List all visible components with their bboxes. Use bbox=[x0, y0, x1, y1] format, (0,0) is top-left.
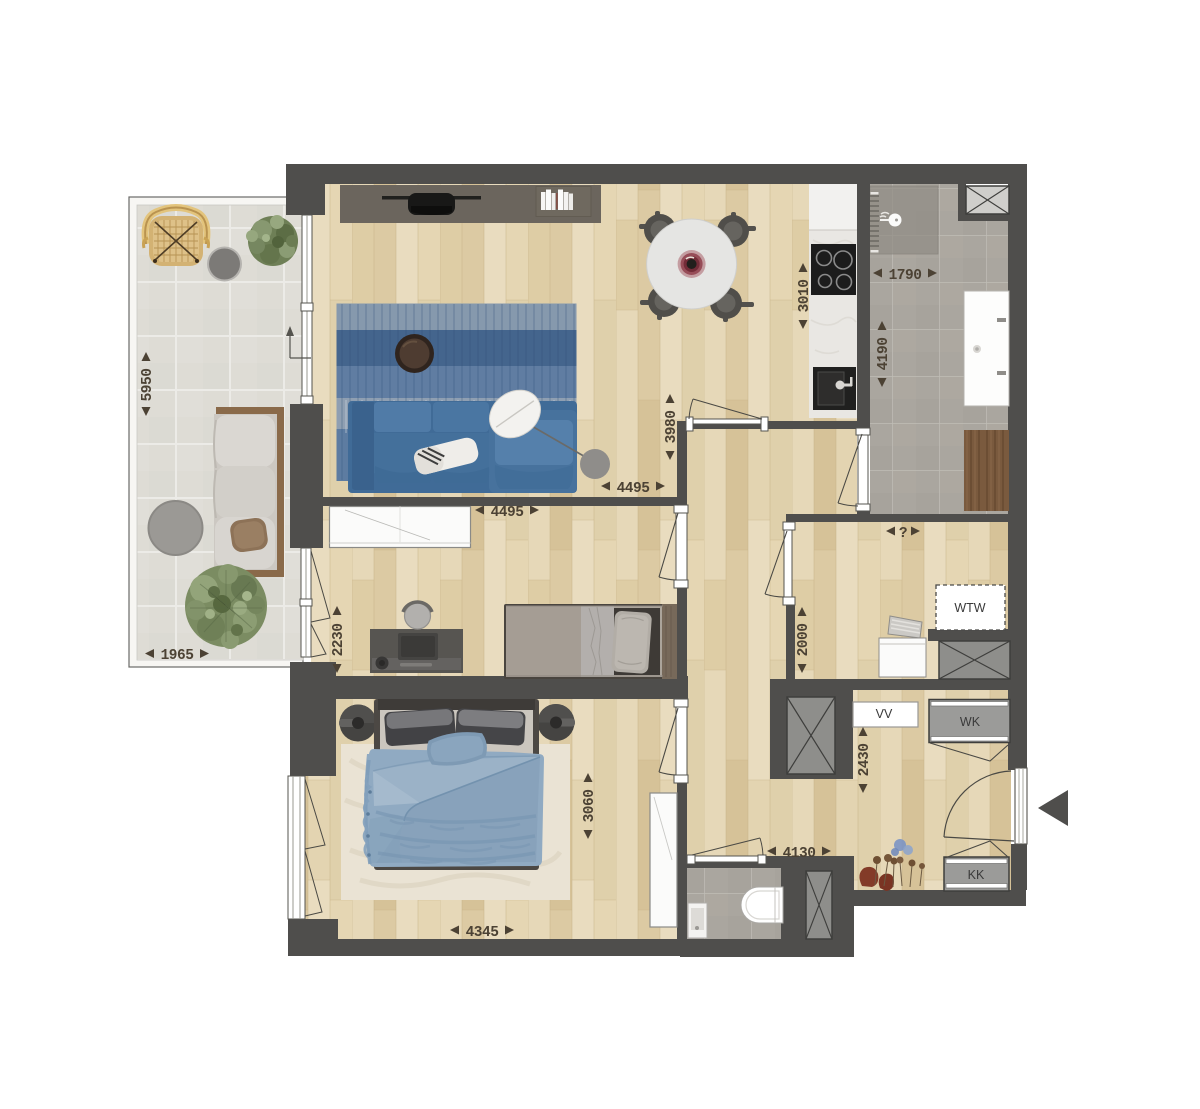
svg-text:2230: 2230 bbox=[331, 624, 347, 657]
svg-text:4190: 4190 bbox=[876, 338, 892, 371]
svg-text:4495: 4495 bbox=[617, 481, 650, 497]
svg-text:3010: 3010 bbox=[797, 280, 813, 313]
svg-text:2430: 2430 bbox=[857, 744, 873, 777]
svg-text:?: ? bbox=[899, 526, 907, 542]
svg-text:4495: 4495 bbox=[491, 505, 524, 521]
svg-text:4345: 4345 bbox=[466, 925, 499, 941]
svg-text:4130: 4130 bbox=[783, 846, 816, 862]
svg-text:VV: VV bbox=[876, 707, 893, 721]
svg-text:WTW: WTW bbox=[954, 601, 985, 615]
svg-text:1965: 1965 bbox=[161, 648, 194, 664]
svg-text:2000: 2000 bbox=[796, 624, 812, 657]
svg-text:3060: 3060 bbox=[582, 790, 598, 823]
svg-text:3980: 3980 bbox=[664, 411, 680, 444]
svg-text:KK: KK bbox=[968, 868, 985, 882]
svg-text:WK: WK bbox=[960, 715, 981, 729]
svg-text:1790: 1790 bbox=[889, 268, 922, 284]
svg-text:5950: 5950 bbox=[140, 369, 156, 402]
